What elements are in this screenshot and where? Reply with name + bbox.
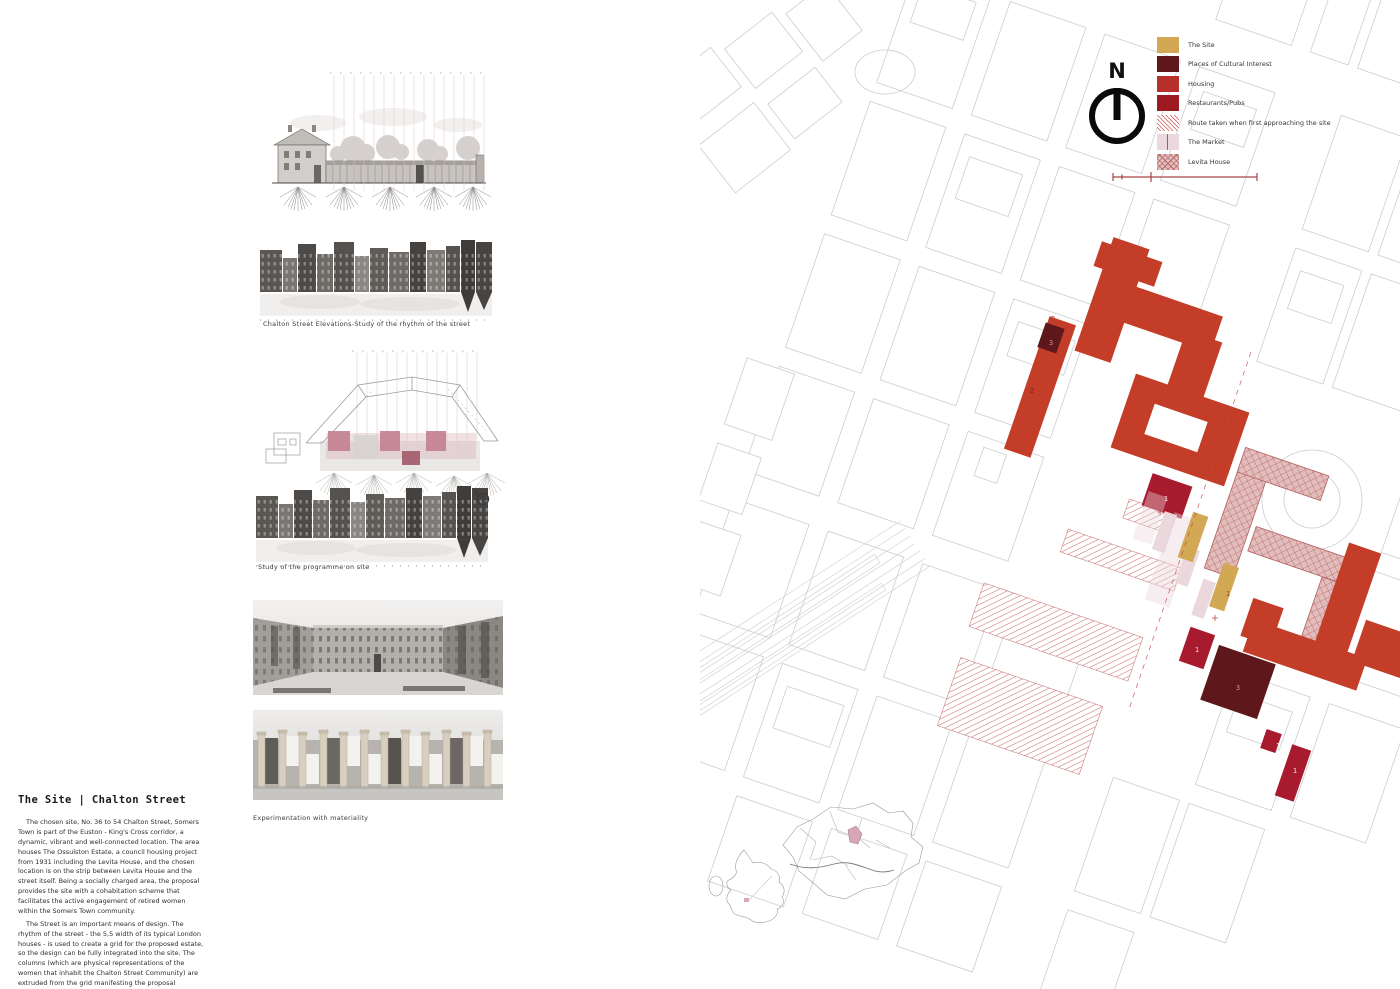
legend-swatch-levita-house [1157, 154, 1179, 170]
page-title: The Site | Chalton Street [18, 794, 204, 806]
root-diagrams [280, 187, 491, 211]
caption-materiality: Experimentation with materiality [253, 814, 368, 822]
north-label: N [1108, 59, 1126, 83]
annex-outline [266, 433, 300, 463]
map-number: 1 [1276, 742, 1280, 750]
legend-item-route: Route taken when first approaching the s… [1157, 114, 1331, 131]
house-elevation [274, 125, 330, 183]
body-paragraph-1: The chosen site, No. 36 to 54 Chalton St… [18, 818, 204, 917]
legend-item-housing: Housing [1157, 75, 1331, 92]
body-paragraph-2: The Street is an important means of desi… [18, 920, 204, 989]
map-number: 1 [1293, 767, 1297, 775]
legend-item-restaurants-pubs: Restaurants/Pubs [1157, 95, 1331, 112]
legend-label: The Site [1188, 41, 1215, 49]
legend-swatch-the-site [1157, 37, 1179, 53]
street-elevation-2 [256, 486, 488, 566]
programme-axon-drawing [266, 351, 505, 500]
legend-label: Route taken when first approaching the s… [1188, 119, 1331, 127]
map-number: 3 [1236, 684, 1240, 692]
map-number: 3 [1049, 339, 1053, 347]
elevation-study-drawing [272, 73, 491, 211]
legend-label: The Market [1188, 138, 1225, 146]
map-number: 1 [1195, 646, 1199, 654]
map-number: 1 [1164, 495, 1168, 503]
map-number: 2 [1051, 315, 1055, 323]
map-number: 2 [1030, 387, 1034, 395]
legend-item-cultural-interest: Places of Cultural Interest [1157, 56, 1331, 73]
map-legend: The Site Places of Cultural Interest Hou… [1157, 36, 1331, 173]
map-number: 1 [1226, 590, 1230, 598]
model-photo-columns [253, 710, 503, 800]
title-block: The Site | Chalton Street The chosen sit… [18, 794, 204, 989]
map-number: 3 [1170, 351, 1174, 359]
legend-item-levita-house: Levita House [1157, 153, 1331, 170]
legend-label: Levita House [1188, 158, 1230, 166]
caption-elevations: Chalton Street Elevations-Study of the r… [263, 320, 470, 328]
caption-programme: Study of the programme on site [258, 563, 369, 571]
legend-item-the-market: The Market [1157, 134, 1331, 151]
legend-swatch-route [1157, 115, 1179, 131]
model-photo-courtyard [253, 600, 503, 695]
legend-swatch-the-market [1157, 134, 1179, 150]
legend-label: Restaurants/Pubs [1188, 99, 1245, 107]
legend-label: Housing [1188, 80, 1214, 88]
legend-label: Places of Cultural Interest [1188, 60, 1272, 68]
legend-item-the-site: The Site [1157, 36, 1331, 53]
legend-swatch-restaurants-pubs [1157, 95, 1179, 111]
street-elevation-1 [260, 240, 492, 320]
tree-canopies [330, 135, 480, 162]
portfolio-board: 2 3 2 3 1 1 1 3 1 1 [0, 0, 1400, 989]
north-mini-label: N [475, 491, 479, 497]
legend-swatch-cultural-interest [1157, 56, 1179, 72]
legend-swatch-housing [1157, 76, 1179, 92]
